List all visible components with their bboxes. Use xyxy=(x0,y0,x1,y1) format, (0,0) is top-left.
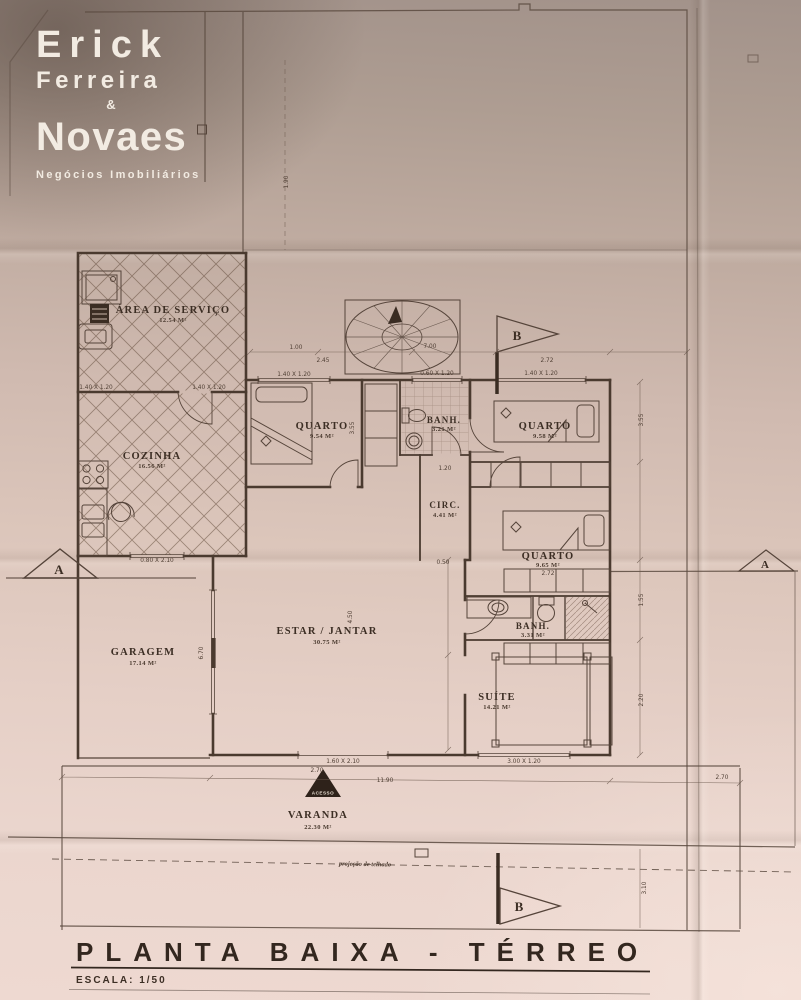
dim-text: 2.70 xyxy=(716,775,729,781)
dim-text: 0.60 X 1.20 xyxy=(420,371,454,377)
section-marker-a-left: A xyxy=(54,562,64,577)
room-area-circ: 4.41 M² xyxy=(433,512,457,519)
room-area-banh-2: 3.31 M² xyxy=(521,632,545,639)
room-label-varanda: VARANDA xyxy=(288,810,348,821)
dim-text: 3.00 X 1.20 xyxy=(507,759,541,765)
dim-text: 1.40 X 1.20 xyxy=(192,385,226,391)
logo-name-novaes: Novaes xyxy=(36,114,206,160)
dim-text: 3.55 xyxy=(350,421,356,434)
title-block: PLANTA BAIXA - TÉRREO ESCALA: 1/50 xyxy=(69,937,650,994)
room-label-cozinha: COZINHA xyxy=(123,451,182,462)
room-area-cozinha: 16.56 M² xyxy=(138,463,166,470)
access-label: ACESSO xyxy=(312,791,334,796)
room-label-banh-1: BANH. xyxy=(427,415,461,425)
dim-text: 3.55 xyxy=(639,413,645,426)
dim-text: 1.00 xyxy=(290,345,303,351)
agency-logo: Erick Ferreira & Novaes Negócios Imobili… xyxy=(36,26,206,181)
floorplan-photo: B B A A ACESSO ÁREA DE SERVIÇO 12.54 M² … xyxy=(0,0,801,1000)
logo-name-ferreira: Ferreira xyxy=(36,66,206,96)
room-label-quarto-1: QUARTO xyxy=(296,421,349,432)
plan-scale: ESCALA: 1/50 xyxy=(76,975,167,986)
room-area-varanda: 22.30 M² xyxy=(304,824,332,831)
room-area-area-servico: 12.54 M² xyxy=(159,317,187,324)
logo-tagline: Negócios Imobiliários xyxy=(36,169,206,181)
dim-text: 1.60 X 2.10 xyxy=(326,759,360,765)
room-label-suite: SUÍTE xyxy=(478,691,516,703)
room-area-garagem: 17.14 M² xyxy=(129,660,157,667)
room-label-circ: CIRC. xyxy=(429,500,460,510)
dim-text: 4.50 xyxy=(348,610,354,623)
dim-text: 0.80 X 2.10 xyxy=(140,558,174,564)
dim-text: 2.70 xyxy=(311,768,324,774)
spiral-staircase xyxy=(345,300,460,374)
dim-text: 1.40 X 1.20 xyxy=(524,371,558,377)
dim-text: 0.50 xyxy=(437,560,450,566)
dim-text: 1.90 xyxy=(284,175,290,188)
dim-text: 2.45 xyxy=(317,358,330,364)
logo-name-erick: Erick xyxy=(36,26,206,66)
roof-projection-label: projeção de telhado xyxy=(338,861,392,869)
dim-text: 1.55 xyxy=(639,593,645,606)
room-area-quarto-1: 9.54 M² xyxy=(310,433,334,440)
room-area-banh-1: 3.21 M² xyxy=(432,426,456,433)
dim-text: 1.40 X 1.20 xyxy=(79,385,113,391)
room-label-quarto-3: QUARTO xyxy=(522,551,575,562)
room-area-quarto-2: 9.58 M² xyxy=(533,433,557,440)
dim-text: 11.90 xyxy=(377,778,394,784)
dim-text: 1.20 xyxy=(439,466,452,472)
room-area-estar-jantar: 30.75 M² xyxy=(313,639,341,646)
plan-title: PLANTA BAIXA - TÉRREO xyxy=(76,937,649,967)
dim-text: 2.72 xyxy=(542,571,555,577)
room-label-banh-2: BANH. xyxy=(516,621,550,631)
dim-text: 1.40 X 1.20 xyxy=(277,372,311,378)
dim-text: 2.20 xyxy=(639,693,645,706)
dim-text: 2.72 xyxy=(541,358,554,364)
section-marker-a-right: A xyxy=(761,559,769,571)
logo-ampersand: & xyxy=(36,96,186,114)
room-label-quarto-2: QUARTO xyxy=(519,421,572,432)
room-area-suite: 14.21 M² xyxy=(483,704,511,711)
dim-text: 6.70 xyxy=(199,646,205,659)
room-label-estar-jantar: ESTAR / JANTAR xyxy=(276,626,377,637)
room-label-garagem: GARAGEM xyxy=(111,647,175,658)
section-marker-b-top: B xyxy=(513,328,522,343)
dim-text: 3.10 xyxy=(642,881,648,894)
section-marker-b-bottom: B xyxy=(515,899,524,914)
room-area-quarto-3: 9.65 M² xyxy=(536,562,560,569)
room-label-area-servico: ÁREA DE SERVIÇO xyxy=(116,304,230,316)
dim-text: 7.00 xyxy=(424,344,437,350)
